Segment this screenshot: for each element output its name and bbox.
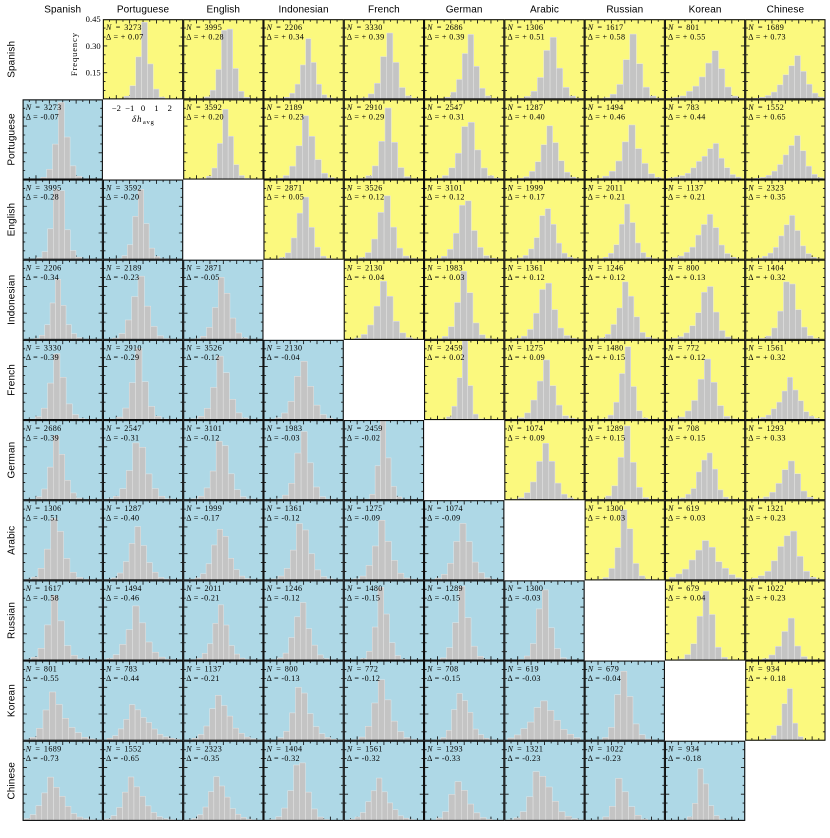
- svg-text:N = 2323: N = 2323: [747, 183, 784, 192]
- svg-text:N = 2130: N = 2130: [266, 344, 303, 353]
- svg-text:N = 783: N = 783: [105, 664, 137, 673]
- svg-text:Δ = + 0.40: Δ = + 0.40: [507, 113, 545, 122]
- svg-text:Δ = -0.29: Δ = -0.29: [106, 353, 139, 362]
- svg-text:Δ = + 0.44: Δ = + 0.44: [668, 113, 706, 122]
- svg-text:Δ = + 0.20: Δ = + 0.20: [186, 113, 224, 122]
- svg-text:N = 2686: N = 2686: [25, 424, 62, 433]
- svg-text:Δ = + 0.12: Δ = + 0.12: [588, 273, 626, 282]
- svg-text:N = 1306: N = 1306: [25, 504, 62, 513]
- svg-text:N = 679: N = 679: [587, 664, 619, 673]
- svg-text:N = 3995: N = 3995: [185, 23, 222, 32]
- svg-text:Δ = + 0.18: Δ = + 0.18: [748, 674, 786, 683]
- svg-text:Δ = -0.32: Δ = -0.32: [267, 754, 300, 763]
- svg-text:N = 708: N = 708: [667, 424, 699, 433]
- svg-text:N = 2459: N = 2459: [346, 424, 383, 433]
- svg-text:N = 2130: N = 2130: [346, 264, 383, 273]
- svg-text:N = 3592: N = 3592: [185, 103, 222, 112]
- svg-text:Δ = + 0.34: Δ = + 0.34: [267, 32, 305, 41]
- svg-text:N = 2189: N = 2189: [266, 103, 303, 112]
- svg-text:German: German: [6, 442, 17, 479]
- svg-text:N = 1404: N = 1404: [747, 264, 784, 273]
- svg-text:Δ = + 0.13: Δ = + 0.13: [668, 273, 706, 282]
- svg-text:German: German: [446, 5, 483, 16]
- svg-text:N = 2871: N = 2871: [185, 264, 222, 273]
- svg-text:Δ = -0.12: Δ = -0.12: [186, 353, 219, 362]
- svg-text:Δ = -0.23: Δ = -0.23: [106, 273, 139, 282]
- svg-text:N = 1293: N = 1293: [747, 424, 784, 433]
- svg-text:Δ = -0.04: Δ = -0.04: [267, 353, 300, 362]
- svg-text:N = 3526: N = 3526: [185, 344, 222, 353]
- svg-text:N = 934: N = 934: [667, 745, 699, 754]
- svg-text:Δ = + 0.23: Δ = + 0.23: [748, 513, 786, 522]
- svg-text:N = 2206: N = 2206: [266, 23, 303, 32]
- svg-text:Δ = -0.04: Δ = -0.04: [588, 674, 621, 683]
- svg-text:Δ = + 0.32: Δ = + 0.32: [748, 273, 786, 282]
- svg-text:N = 1999: N = 1999: [506, 183, 543, 192]
- svg-text:N = 1306: N = 1306: [506, 23, 543, 32]
- svg-text:Russian: Russian: [6, 602, 17, 639]
- svg-text:Chinese: Chinese: [6, 762, 17, 800]
- svg-text:N = 1246: N = 1246: [587, 264, 624, 273]
- svg-text:N = 2459: N = 2459: [426, 344, 463, 353]
- svg-text:N = 1074: N = 1074: [426, 504, 463, 513]
- svg-text:French: French: [6, 364, 17, 396]
- svg-text:Δ = + 0.23: Δ = + 0.23: [267, 113, 305, 122]
- svg-text:Δ = + 0.73: Δ = + 0.73: [748, 32, 786, 41]
- svg-text:2: 2: [168, 103, 172, 113]
- svg-text:N = 1983: N = 1983: [266, 424, 303, 433]
- svg-text:Δ = + 0.31: Δ = + 0.31: [427, 113, 465, 122]
- svg-text:Δ = + 0.21: Δ = + 0.21: [588, 193, 626, 202]
- svg-text:N = 801: N = 801: [25, 664, 57, 673]
- svg-text:N = 1494: N = 1494: [587, 103, 624, 112]
- svg-text:N = 800: N = 800: [266, 664, 298, 673]
- svg-text:0: 0: [141, 103, 145, 113]
- svg-text:Δ = -0.12: Δ = -0.12: [347, 674, 380, 683]
- svg-text:N = 3330: N = 3330: [346, 23, 383, 32]
- svg-text:N = 772: N = 772: [667, 344, 699, 353]
- svg-text:N = 1689: N = 1689: [25, 745, 62, 754]
- svg-text:N = 1022: N = 1022: [747, 584, 784, 593]
- svg-text:Δ = -0.02: Δ = -0.02: [347, 433, 380, 442]
- svg-text:Δ = + 0.65: Δ = + 0.65: [748, 113, 786, 122]
- svg-text:Δ = + 0.03: Δ = + 0.03: [668, 513, 706, 522]
- svg-text:Δ = + 0.39: Δ = + 0.39: [347, 32, 385, 41]
- svg-text:Δ = + 0.02: Δ = + 0.02: [427, 353, 465, 362]
- svg-text:N = 2686: N = 2686: [426, 23, 463, 32]
- svg-text:French: French: [368, 5, 400, 16]
- svg-text:Δ = -0.21: Δ = -0.21: [186, 674, 219, 683]
- svg-text:N = 1275: N = 1275: [346, 504, 383, 513]
- svg-text:N = 1999: N = 1999: [185, 504, 222, 513]
- svg-text:0.15: 0.15: [86, 68, 101, 78]
- svg-text:Δ = -0.32: Δ = -0.32: [347, 754, 380, 763]
- svg-text:Δ = -0.12: Δ = -0.12: [267, 513, 300, 522]
- svg-text:Δ = -0.31: Δ = -0.31: [106, 433, 139, 442]
- svg-text:Δ = + 0.51: Δ = + 0.51: [507, 32, 545, 41]
- svg-text:Δ = -0.05: Δ = -0.05: [186, 273, 219, 282]
- svg-text:N = 1617: N = 1617: [25, 584, 62, 593]
- svg-text:N = 1287: N = 1287: [506, 103, 543, 112]
- svg-text:N = 1289: N = 1289: [587, 424, 624, 433]
- svg-text:Δ = + 0.33: Δ = + 0.33: [748, 433, 786, 442]
- svg-text:N = 1321: N = 1321: [747, 504, 784, 513]
- svg-text:N = 679: N = 679: [667, 584, 699, 593]
- svg-text:0.45: 0.45: [86, 14, 101, 24]
- svg-text:N = 1137: N = 1137: [185, 664, 222, 673]
- svg-text:Δ = -0.55: Δ = -0.55: [26, 674, 59, 683]
- svg-text:N = 3526: N = 3526: [346, 183, 383, 192]
- svg-text:N = 1561: N = 1561: [346, 745, 383, 754]
- svg-text:Δ = -0.39: Δ = -0.39: [26, 353, 59, 362]
- svg-text:Spanish: Spanish: [44, 5, 81, 16]
- svg-text:0.30: 0.30: [86, 41, 101, 51]
- svg-text:N = 1293: N = 1293: [426, 745, 463, 754]
- svg-text:N = 619: N = 619: [506, 664, 538, 673]
- svg-text:Portuguese: Portuguese: [117, 5, 170, 16]
- svg-text:N = 1289: N = 1289: [426, 584, 463, 593]
- svg-text:N = 2011: N = 2011: [587, 183, 624, 192]
- svg-text:Δ = -0.21: Δ = -0.21: [186, 594, 219, 603]
- svg-text:Δ = + 0.21: Δ = + 0.21: [668, 193, 706, 202]
- svg-text:N = 3995: N = 3995: [25, 183, 62, 192]
- svg-text:Frequency: Frequency: [69, 32, 79, 76]
- svg-text:Chinese: Chinese: [767, 5, 805, 16]
- svg-text:−2: −2: [112, 103, 121, 113]
- svg-text:N = 1983: N = 1983: [426, 264, 463, 273]
- svg-text:N = 3273: N = 3273: [105, 23, 142, 32]
- svg-text:Δ = + 0.17: Δ = + 0.17: [507, 193, 545, 202]
- svg-text:English: English: [6, 203, 17, 237]
- svg-text:N = 2910: N = 2910: [105, 344, 142, 353]
- svg-text:Δ = -0.34: Δ = -0.34: [26, 273, 59, 282]
- svg-text:N = 772: N = 772: [346, 664, 378, 673]
- svg-text:N = 1404: N = 1404: [266, 745, 303, 754]
- svg-text:Δ = -0.15: Δ = -0.15: [347, 594, 380, 603]
- svg-text:Δ = -0.09: Δ = -0.09: [347, 513, 380, 522]
- svg-text:Russian: Russian: [606, 5, 643, 16]
- svg-text:N = 1074: N = 1074: [506, 424, 543, 433]
- svg-text:Δ = -0.23: Δ = -0.23: [588, 754, 621, 763]
- svg-text:N = 1300: N = 1300: [506, 584, 543, 593]
- svg-text:N = 1137: N = 1137: [667, 183, 704, 192]
- svg-text:Δ = -0.33: Δ = -0.33: [427, 754, 460, 763]
- svg-text:N = 2011: N = 2011: [185, 584, 222, 593]
- svg-text:Δ = + 0.46: Δ = + 0.46: [588, 113, 626, 122]
- svg-text:N = 1617: N = 1617: [587, 23, 624, 32]
- svg-text:Δ = -0.73: Δ = -0.73: [26, 754, 59, 763]
- svg-text:Δ = -0.23: Δ = -0.23: [507, 754, 540, 763]
- svg-text:Δ = + 0.35: Δ = + 0.35: [748, 193, 786, 202]
- svg-text:Δ = + 0.55: Δ = + 0.55: [668, 32, 706, 41]
- svg-text:Δ = + 0.39: Δ = + 0.39: [427, 32, 465, 41]
- svg-text:N = 1361: N = 1361: [506, 264, 543, 273]
- svg-text:Δ = + 0.04: Δ = + 0.04: [668, 594, 706, 603]
- svg-text:N = 1552: N = 1552: [747, 103, 784, 112]
- svg-text:N = 3330: N = 3330: [25, 344, 62, 353]
- svg-text:Indonesian: Indonesian: [6, 275, 17, 325]
- svg-text:Δ = + 0.05: Δ = + 0.05: [267, 193, 305, 202]
- svg-text:Δ = -0.46: Δ = -0.46: [106, 594, 139, 603]
- svg-text:Δ = -0.12: Δ = -0.12: [267, 594, 300, 603]
- svg-text:Δ = + 0.29: Δ = + 0.29: [347, 113, 385, 122]
- svg-text:N = 934: N = 934: [747, 664, 779, 673]
- svg-text:Δ = -0.28: Δ = -0.28: [26, 193, 59, 202]
- svg-text:N = 3273: N = 3273: [25, 103, 62, 112]
- svg-text:1: 1: [154, 103, 158, 113]
- svg-text:Δ = + 0.09: Δ = + 0.09: [507, 353, 545, 362]
- svg-text:N = 1561: N = 1561: [747, 344, 784, 353]
- svg-text:Δ = -0.39: Δ = -0.39: [26, 433, 59, 442]
- svg-text:Δ = -0.03: Δ = -0.03: [507, 594, 540, 603]
- svg-text:Δ = -0.09: Δ = -0.09: [427, 513, 460, 522]
- svg-text:N = 1287: N = 1287: [105, 504, 142, 513]
- svg-text:Δ = -0.03: Δ = -0.03: [507, 674, 540, 683]
- svg-text:Δ = + 0.23: Δ = + 0.23: [748, 594, 786, 603]
- svg-text:Δ = + 0.15: Δ = + 0.15: [668, 433, 706, 442]
- svg-text:N = 2547: N = 2547: [426, 103, 463, 112]
- svg-text:Δ = -0.12: Δ = -0.12: [186, 433, 219, 442]
- svg-text:−1: −1: [125, 103, 134, 113]
- svg-text:Δ = + 0.12: Δ = + 0.12: [347, 193, 385, 202]
- svg-text:Δ = + 0.12: Δ = + 0.12: [507, 273, 545, 282]
- svg-text:N = 801: N = 801: [667, 23, 699, 32]
- svg-text:N = 619: N = 619: [667, 504, 699, 513]
- svg-text:N = 2206: N = 2206: [25, 264, 62, 273]
- svg-text:Δ = + 0.09: Δ = + 0.09: [507, 433, 545, 442]
- svg-text:Portuguese: Portuguese: [6, 113, 17, 166]
- svg-text:English: English: [206, 5, 240, 16]
- svg-text:Spanish: Spanish: [6, 41, 17, 78]
- svg-text:Arabic: Arabic: [6, 526, 17, 555]
- svg-text:Δ = + 0.58: Δ = + 0.58: [588, 32, 626, 41]
- svg-text:N = 1022: N = 1022: [587, 745, 624, 754]
- svg-text:N = 800: N = 800: [667, 264, 699, 273]
- svg-text:N = 3592: N = 3592: [105, 183, 142, 192]
- svg-text:Δ = -0.07: Δ = -0.07: [26, 113, 59, 122]
- svg-text:Δ = -0.20: Δ = -0.20: [106, 193, 139, 202]
- svg-text:Δ = -0.03: Δ = -0.03: [267, 433, 300, 442]
- svg-text:N = 3101: N = 3101: [426, 183, 463, 192]
- svg-text:N = 2323: N = 2323: [185, 745, 222, 754]
- svg-text:N = 1480: N = 1480: [587, 344, 624, 353]
- svg-text:Δ = -0.58: Δ = -0.58: [26, 594, 59, 603]
- svg-text:N = 1494: N = 1494: [105, 584, 142, 593]
- svg-text:Δ = + 0.12: Δ = + 0.12: [668, 353, 706, 362]
- svg-text:N = 1552: N = 1552: [105, 745, 142, 754]
- svg-text:N = 2871: N = 2871: [266, 183, 303, 192]
- svg-text:Δ = + 0.03: Δ = + 0.03: [588, 513, 626, 522]
- svg-text:N = 1689: N = 1689: [747, 23, 784, 32]
- svg-text:Δ = -0.17: Δ = -0.17: [186, 513, 219, 522]
- svg-text:N = 1480: N = 1480: [346, 584, 383, 593]
- svg-text:Δ = + 0.32: Δ = + 0.32: [748, 353, 786, 362]
- svg-text:Δ = -0.35: Δ = -0.35: [186, 754, 219, 763]
- svg-text:Δ = -0.15: Δ = -0.15: [427, 674, 460, 683]
- svg-text:N = 1300: N = 1300: [587, 504, 624, 513]
- svg-text:Δ = -0.40: Δ = -0.40: [106, 513, 139, 522]
- svg-text:N = 2189: N = 2189: [105, 264, 142, 273]
- svg-text:Δ = + 0.04: Δ = + 0.04: [347, 273, 385, 282]
- svg-text:N = 1321: N = 1321: [506, 745, 543, 754]
- svg-text:Δ = -0.44: Δ = -0.44: [106, 674, 139, 683]
- svg-text:Arabic: Arabic: [530, 5, 559, 16]
- svg-text:Δ = -0.13: Δ = -0.13: [267, 674, 300, 683]
- svg-text:Δ = + 0.28: Δ = + 0.28: [186, 32, 224, 41]
- svg-text:N = 3101: N = 3101: [185, 424, 222, 433]
- svg-text:Δ = + 0.12: Δ = + 0.12: [427, 193, 465, 202]
- svg-text:N = 708: N = 708: [426, 664, 458, 673]
- svg-text:N = 2547: N = 2547: [105, 424, 142, 433]
- svg-text:Δ = -0.18: Δ = -0.18: [668, 754, 701, 763]
- svg-text:Δ = + 0.03: Δ = + 0.03: [427, 273, 465, 282]
- svg-text:Δ = -0.51: Δ = -0.51: [26, 513, 59, 522]
- svg-text:Δ = + 0.15: Δ = + 0.15: [588, 433, 626, 442]
- svg-text:Δ = + 0.07: Δ = + 0.07: [106, 32, 144, 41]
- svg-text:Korean: Korean: [6, 684, 17, 717]
- svg-text:N = 1361: N = 1361: [266, 504, 303, 513]
- svg-text:Δ = -0.65: Δ = -0.65: [106, 754, 139, 763]
- svg-text:Korean: Korean: [689, 5, 722, 16]
- svg-text:N = 2910: N = 2910: [346, 103, 383, 112]
- svg-text:N = 783: N = 783: [667, 103, 699, 112]
- svg-text:Δ = + 0.15: Δ = + 0.15: [588, 353, 626, 362]
- svg-text:Indonesian: Indonesian: [279, 5, 329, 16]
- svg-text:N = 1275: N = 1275: [506, 344, 543, 353]
- svg-text:Δ = -0.15: Δ = -0.15: [427, 594, 460, 603]
- svg-text:N = 1246: N = 1246: [266, 584, 303, 593]
